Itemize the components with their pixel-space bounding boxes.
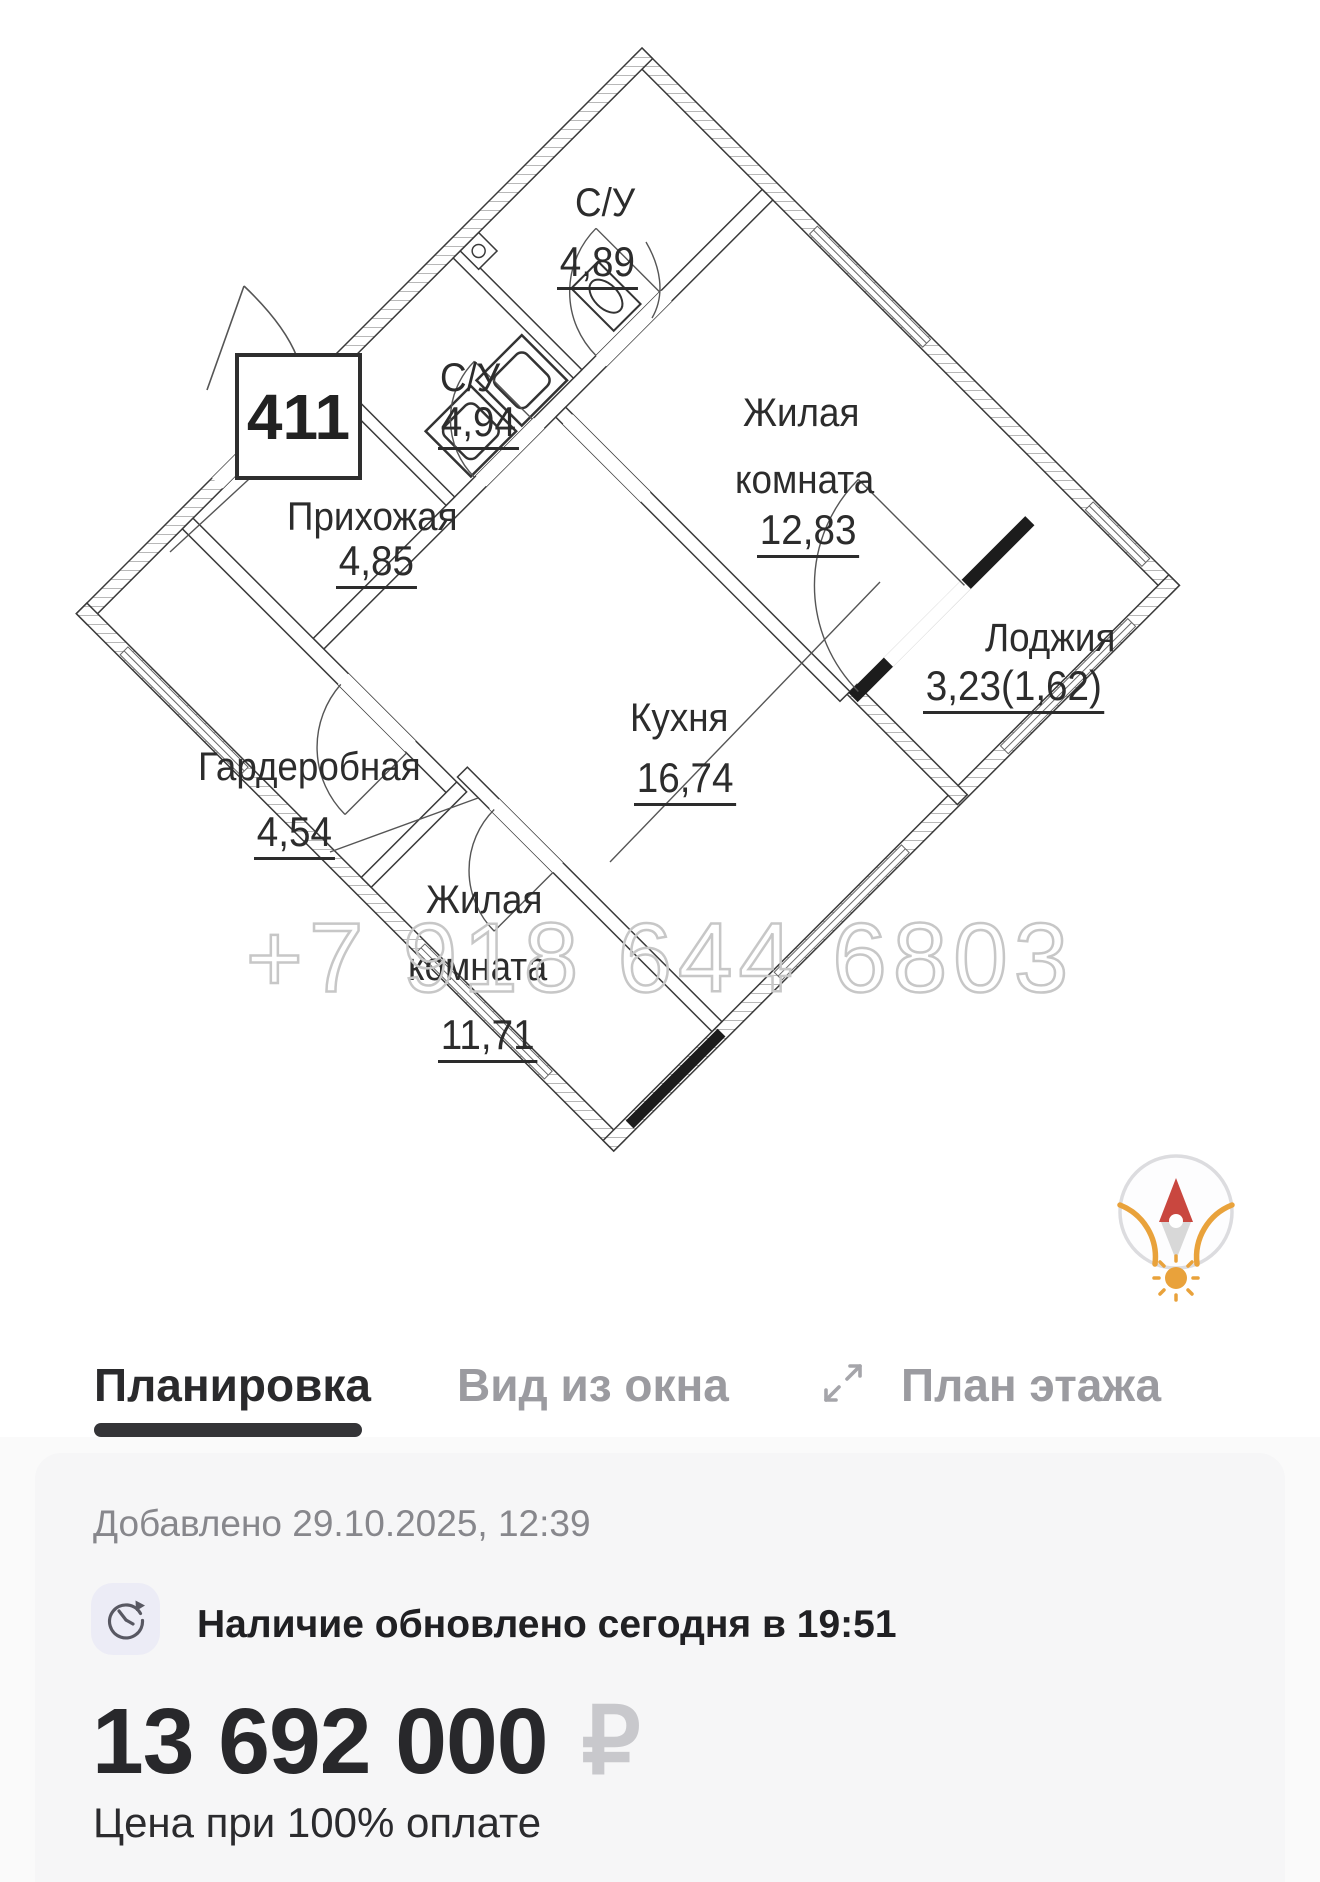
floor-plan-drawing [0, 0, 1320, 1330]
price: 13 692 000₽ [92, 1695, 640, 1788]
room-area-wardrobe: 4,54 [254, 808, 335, 860]
active-tab-indicator [94, 1423, 362, 1437]
tab-floor-plan[interactable]: План этажа [901, 1358, 1161, 1412]
compass-icon [1120, 1156, 1232, 1300]
expand-arrows-icon[interactable] [820, 1360, 866, 1406]
room-label-living1: Жилая [743, 391, 859, 436]
room-area-su2: 4,94 [438, 398, 519, 450]
room-label-loggia: Лоджия [985, 616, 1115, 661]
floor-plan: 411 С/У 4,89 С/У 4,94 Жилая комната 12,8… [0, 0, 1320, 1330]
room-label-wardrobe: Гардеробная [198, 745, 421, 790]
availability-status: Наличие обновлено сегодня в 19:51 [197, 1603, 897, 1647]
tab-layout[interactable]: Планировка [94, 1358, 371, 1412]
room-label-hall: Прихожая [287, 495, 458, 540]
apartment-number-box: 411 [235, 353, 362, 480]
availability-refresh-icon [91, 1583, 160, 1655]
room-label-living1-2: комната [735, 458, 874, 503]
room-label-kitchen: Кухня [630, 696, 728, 741]
room-area-living1: 12,83 [757, 506, 859, 558]
room-label-su1: С/У [575, 181, 635, 226]
price-card: Добавлено 29.10.2025, 12:39 Наличие обно… [35, 1453, 1285, 1882]
sun-icon [1154, 1256, 1198, 1300]
room-area-loggia: 3,23(1,62) [923, 662, 1105, 714]
added-date: Добавлено 29.10.2025, 12:39 [93, 1503, 591, 1545]
apartment-number: 411 [247, 380, 350, 454]
room-area-living2: 11,71 [438, 1011, 537, 1063]
listing-screen: 411 С/У 4,89 С/У 4,94 Жилая комната 12,8… [0, 0, 1320, 1882]
phone-watermark: +7 918 644 6803 [246, 902, 1074, 1015]
room-label-su2: С/У [440, 356, 500, 401]
room-area-su1: 4,89 [557, 238, 638, 290]
room-area-kitchen: 16,74 [634, 754, 736, 806]
tab-window-view[interactable]: Вид из окна [457, 1358, 729, 1412]
price-value: 13 692 000 [92, 1689, 547, 1793]
currency-symbol: ₽ [581, 1689, 639, 1793]
room-area-hall: 4,85 [336, 537, 417, 589]
price-note: Цена при 100% оплате [93, 1799, 541, 1847]
